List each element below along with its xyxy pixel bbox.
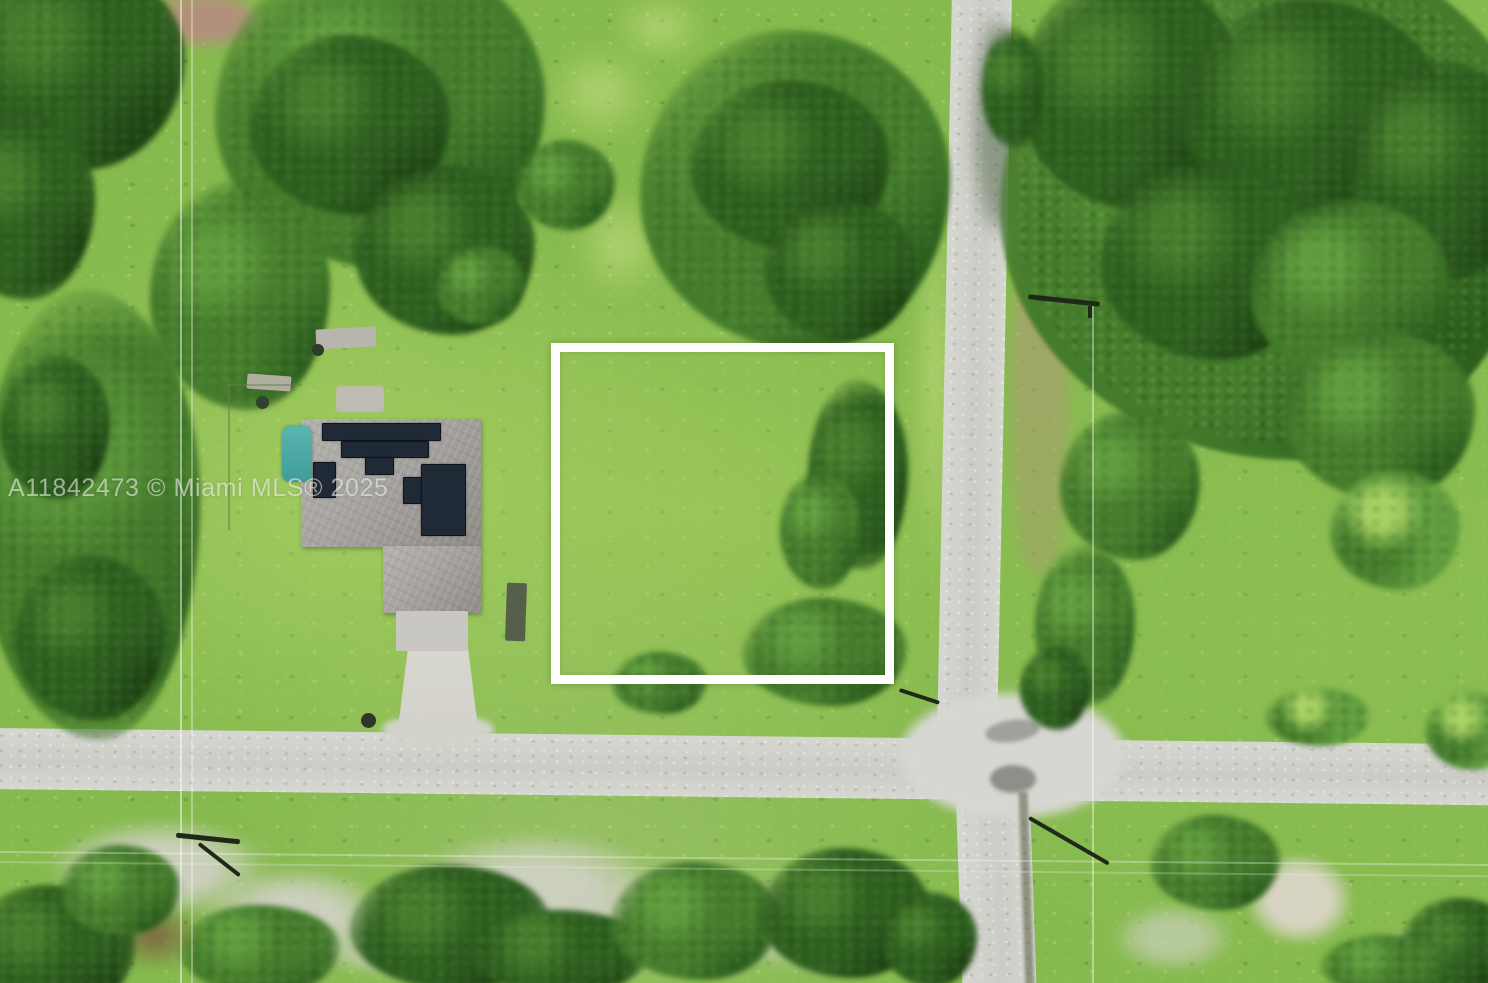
tire-near-road xyxy=(361,713,376,728)
entry-pad xyxy=(396,611,468,651)
small-tree xyxy=(435,245,525,325)
shrub-cluster xyxy=(1265,688,1370,746)
tree-cluster xyxy=(150,180,330,410)
shrub-cluster xyxy=(60,845,180,935)
driveway-apron xyxy=(382,714,494,744)
property-boundary-outline xyxy=(551,343,894,684)
tree-overhang-road xyxy=(882,892,977,983)
shrub-cluster xyxy=(1330,470,1460,590)
yard-tire xyxy=(312,344,324,356)
solar-panel-array xyxy=(341,441,429,458)
small-tree xyxy=(515,140,615,230)
house-roof-wing xyxy=(383,546,481,613)
shrub-cluster xyxy=(180,905,340,983)
road-east-west xyxy=(0,728,1488,805)
trailer-object xyxy=(505,583,527,642)
solar-panel-array xyxy=(322,423,441,441)
shrub-cluster xyxy=(610,862,780,980)
tree-cluster xyxy=(1060,410,1200,560)
tree-cluster xyxy=(15,555,165,720)
backyard-equipment xyxy=(247,373,292,391)
tree-cluster xyxy=(1020,645,1090,730)
service-drop-wire xyxy=(1028,816,1110,865)
solar-panel-array xyxy=(421,464,466,536)
utility-pole xyxy=(1088,306,1092,318)
aerial-photo: A11842473 © Miami MLS® 2025 xyxy=(0,0,1488,983)
tree-cluster xyxy=(765,200,915,340)
tree-overhang-road xyxy=(982,28,1042,148)
service-drop-wire xyxy=(899,688,940,705)
backyard-shed xyxy=(316,326,377,349)
solar-panel-array xyxy=(365,457,394,475)
mls-watermark: A11842473 © Miami MLS® 2025 xyxy=(8,474,389,503)
fence-line xyxy=(228,384,230,530)
backyard-equipment xyxy=(336,386,384,412)
yard-tire xyxy=(256,396,269,409)
power-line xyxy=(1092,306,1094,983)
road-patch-dark xyxy=(990,765,1036,793)
fence-line xyxy=(228,384,302,386)
